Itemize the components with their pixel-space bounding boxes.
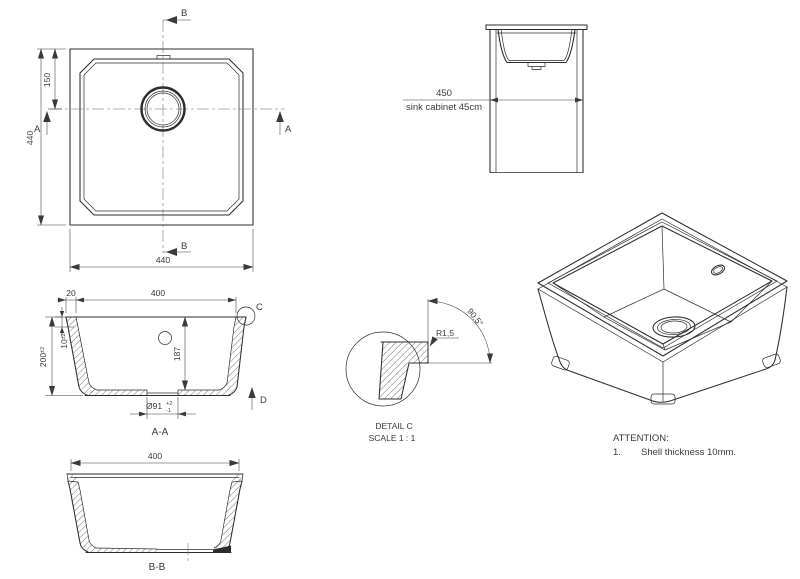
dim-top-view-width: 440 [156, 255, 170, 265]
dim-total-height: 200±2 [38, 347, 48, 367]
detail-c-view: 90.5° R1,5 DETAIL C SCALE 1 : 1 [346, 299, 492, 443]
note-1-number: 1. [613, 447, 621, 458]
isometric-view [538, 213, 787, 404]
note-1-text: Shell thickness 10mm. [641, 447, 736, 458]
dim-drain-tol-plus: +2 [166, 401, 172, 407]
section-label-a: A [285, 124, 292, 135]
section-marker-a-right: A [276, 111, 292, 135]
drain-iso [653, 316, 696, 338]
section-marker-b-bottom: B [163, 241, 191, 256]
dim-wall-angle: 90.5° [465, 306, 485, 328]
dim-cabinet-width: 450 [436, 88, 452, 99]
section-marker-a-left: A [34, 111, 51, 135]
dim-drain-tol-minus: -1 [166, 408, 171, 414]
dim-aa-opening: 400 [151, 288, 165, 298]
dim-drain-diameter: Ø91 [146, 401, 162, 411]
dim-bb-opening: 400 [148, 451, 162, 461]
dim-shell-thickness: 10±2 [59, 333, 69, 349]
section-marker-b-top: B [163, 8, 191, 24]
section-label-b: B [181, 8, 187, 19]
cabinet-caption: sink cabinet 45cm [406, 102, 482, 113]
notes: ATTENTION: 1. Shell thickness 10mm. [613, 433, 736, 458]
detail-c-label: C [256, 302, 263, 313]
section-label-a: A [34, 124, 41, 135]
dim-drain-offset: 150 [42, 73, 52, 87]
overflow-hole [159, 332, 172, 345]
section-aa-caption: A-A [152, 427, 169, 438]
technical-drawing-sheet: 440 150 440 B B A A [0, 0, 800, 579]
sink-bowl-profile [497, 30, 576, 70]
sink-technical-drawing: 440 150 440 B B A A [0, 0, 800, 579]
cabinet-view: 450 sink cabinet 45cm [403, 25, 587, 173]
top-view: 440 150 440 B B A A [25, 8, 292, 272]
section-aa-view: 20 400 10±2 200±2 187 Ø91 +2 -1 C D [38, 288, 267, 438]
overflow-iso [710, 263, 726, 277]
foot-right [762, 353, 781, 368]
detail-c-circle [237, 307, 255, 325]
direction-marker-d: D [248, 387, 267, 410]
direction-label-d: D [260, 395, 267, 406]
dim-corner-radius: R1,5 [436, 328, 454, 338]
dim-rim-width: 20 [66, 288, 76, 298]
dim-bowl-depth: 187 [172, 347, 182, 361]
detail-c-title: DETAIL C [375, 421, 412, 431]
notes-title: ATTENTION: [613, 433, 669, 444]
countertop [486, 25, 587, 30]
section-bb-caption: B-B [149, 562, 166, 573]
section-label-b: B [181, 241, 187, 252]
section-bb-view: 400 B-B [67, 451, 243, 573]
detail-c-scale: SCALE 1 : 1 [369, 433, 416, 443]
